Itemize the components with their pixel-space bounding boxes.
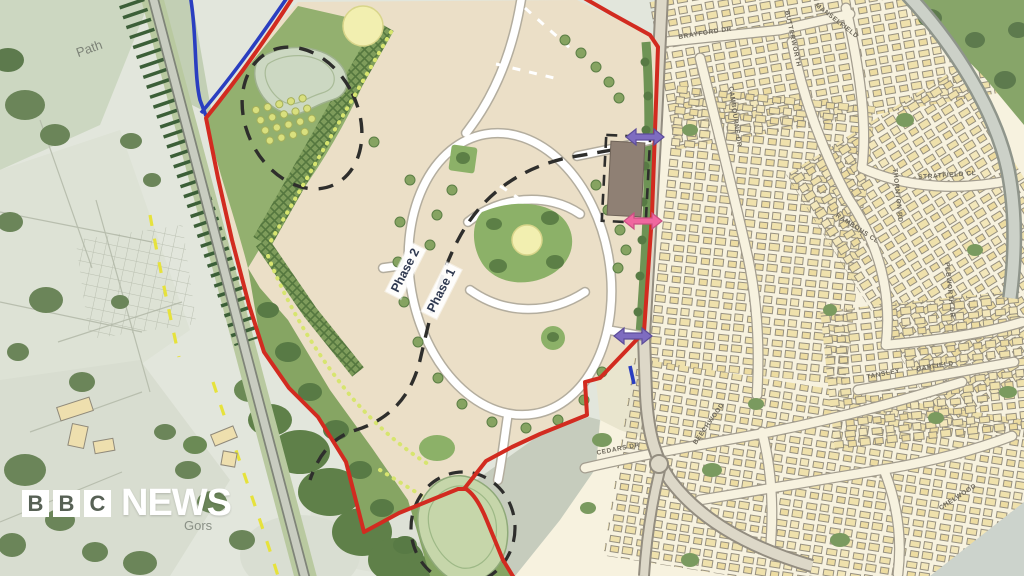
bbc-news-map-graphic: Path Gors Phase 2 Phase 1 BRAYFORD DR BU… bbox=[0, 0, 1024, 576]
bbc-news-wordmark: NEWS bbox=[121, 490, 231, 517]
bbc-news-logo: B B C NEWS bbox=[22, 490, 231, 517]
bbc-logo-block-c: C bbox=[84, 490, 111, 517]
bbc-logo-letter: C bbox=[90, 490, 106, 517]
bbc-logo-block-b2: B bbox=[53, 490, 80, 517]
bbc-logo-letter: B bbox=[28, 490, 44, 517]
bbc-logo-block-b1: B bbox=[22, 490, 49, 517]
bbc-logo-letter: B bbox=[59, 490, 75, 517]
play-area-circle bbox=[512, 225, 542, 255]
